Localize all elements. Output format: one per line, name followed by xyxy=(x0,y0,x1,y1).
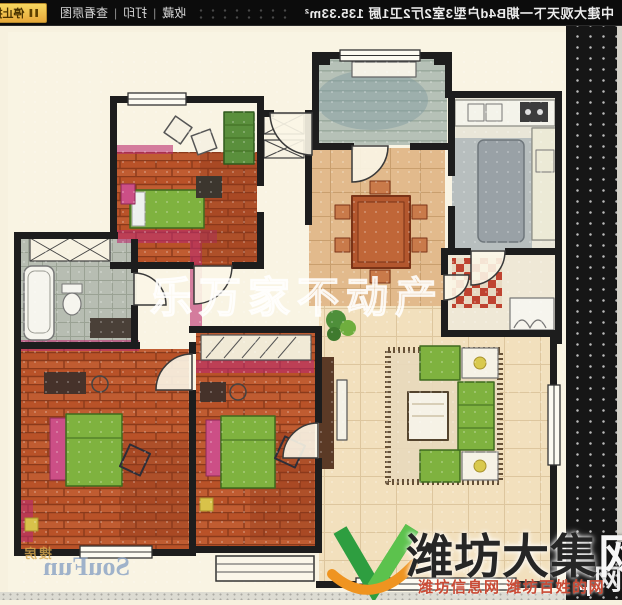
bay-window xyxy=(216,556,314,581)
daji-v-logo-icon xyxy=(326,516,418,600)
dot-pattern xyxy=(199,7,291,19)
separator: | xyxy=(114,6,117,20)
soufun-logo-text: SouFun xyxy=(43,552,130,581)
screenshot-root: { "topbar": { "title": "中建大观天下一期B4d户型3室2… xyxy=(0,0,622,600)
photo-viewer-topbar: 中建大观天下一期B4d户型3室2厅2卫1厨 135.33m² 收藏 | 打印 |… xyxy=(0,0,622,26)
right-edge-sliver xyxy=(617,24,622,542)
floorplan-image: 乐万家不动产 xyxy=(0,0,622,600)
favorite-link[interactable]: 收藏 xyxy=(162,4,186,21)
center-watermark-text: 乐万家不动产 xyxy=(150,274,444,321)
print-link[interactable]: 打印 xyxy=(123,4,147,21)
daji-subtitle: 潍坊信息网 潍坊百姓的网 xyxy=(418,576,605,597)
separator: | xyxy=(153,6,156,20)
topbar-links: 收藏 | 打印 | 查看原图 xyxy=(60,4,186,21)
daji-watermark: 潍坊大集网 潍坊信息网 潍坊百姓的网 xyxy=(326,516,622,600)
stop-playback-button[interactable]: ❚❚ 停止播放 xyxy=(0,3,47,23)
listing-title: 中建大观天下一期B4d户型3室2厅2卫1厨 135.33m² xyxy=(304,3,614,22)
pause-icon: ❚❚ xyxy=(29,8,40,17)
dotted-sidebar: 网 xyxy=(566,24,622,600)
view-original-link[interactable]: 查看原图 xyxy=(60,4,108,21)
topbar-mirrored-content: 中建大观天下一期B4d户型3室2厅2卫1厨 135.33m² 收藏 | 打印 |… xyxy=(0,0,622,25)
stop-playback-label: 停止播放 xyxy=(0,5,25,21)
soufun-watermark: SouFun 搜房 xyxy=(20,552,130,590)
soufun-cn-label: 搜房 xyxy=(22,543,52,562)
